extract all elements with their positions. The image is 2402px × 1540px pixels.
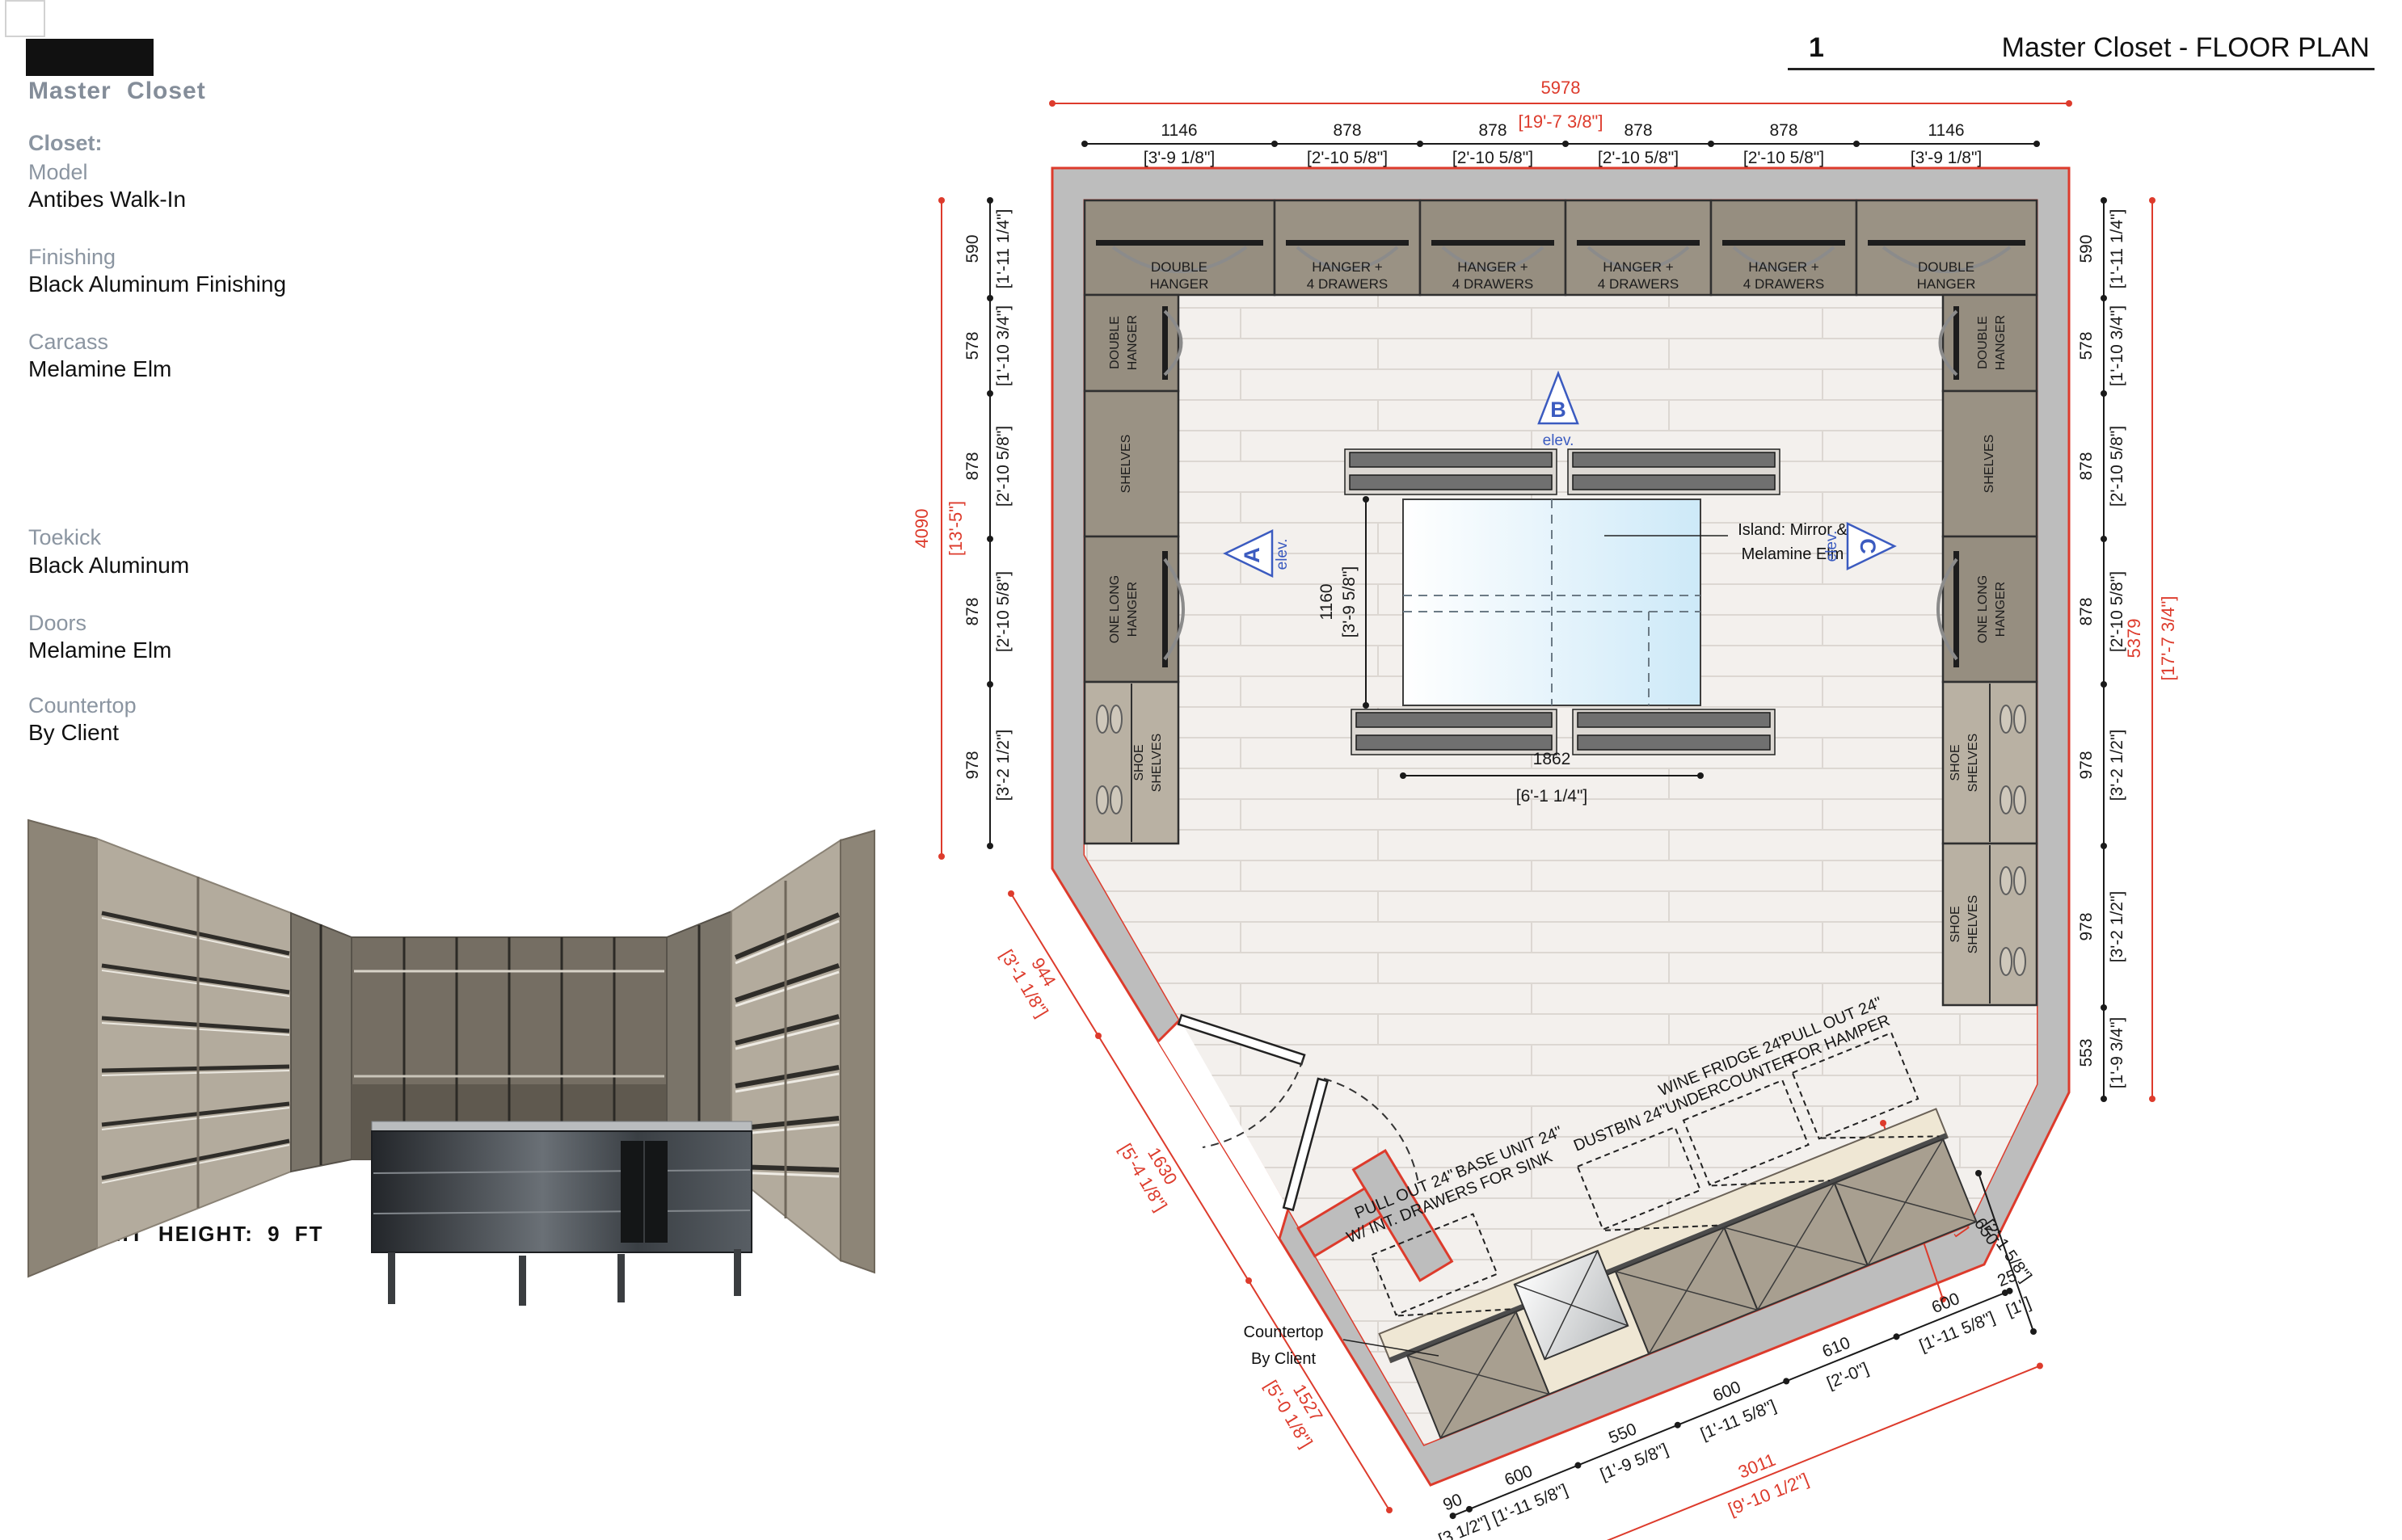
dim-text: 610 (1820, 1333, 1853, 1361)
cabinet-label: ONE LONG (1976, 575, 1990, 643)
cabinet-label: SHELVES (1966, 895, 1980, 954)
left-cabinet-column: DOUBLE HANGER SHELVES ONE LONG HANGER SH… (1085, 295, 1183, 844)
dim-text: 600 (1710, 1378, 1743, 1405)
marker-letter: C (1856, 538, 1880, 554)
marker-elev-label: elev. (1274, 539, 1291, 570)
dim-text: 878 (1624, 121, 1652, 140)
cabinet-left-double-hanger: DOUBLE HANGER (1085, 295, 1182, 391)
cabinet-label: ONE LONG (1108, 575, 1122, 643)
cabinet-label: SHELVES (1119, 435, 1133, 494)
top-overall-dim: 5978 [19'-7 3/8"] (1049, 78, 2072, 132)
closet-3d-render (16, 792, 889, 1309)
dim-text: [1'-10 3/4"] (2108, 305, 2126, 386)
countertop-value: By Client (28, 720, 119, 746)
cabinet-label: SHELVES (1966, 734, 1980, 793)
cabinet-label: HANGER + (1312, 259, 1382, 275)
dim-text: [3'-2 1/2"] (2108, 730, 2126, 802)
render-left-end-panel (28, 820, 97, 1277)
dim-text: 5978 (1541, 78, 1581, 98)
dim-text: [3'-9 5/8"] (1340, 566, 1359, 638)
dim-text: 878 (1478, 121, 1507, 140)
dim-text: [1'-9 5/8"] (1598, 1440, 1671, 1483)
marker-elev-label: elev. (1543, 432, 1574, 449)
dim-text: 878 (2077, 597, 2096, 625)
dim-text: 550 (1606, 1420, 1639, 1447)
right-overall-dim: 5379 [17'-7 3/4"] (2124, 197, 2178, 1102)
cabinet-right-shelves: SHELVES (1943, 391, 2037, 536)
render-left-shelf-wall (97, 839, 291, 1248)
dim-text: 1160 (1317, 583, 1336, 620)
cabinet-label: DOUBLE (1108, 316, 1122, 369)
dim-text: [1'-9 3/4"] (2108, 1017, 2126, 1089)
marker-letter: A (1240, 547, 1264, 563)
finishing-label: Finishing (28, 245, 116, 270)
cabinet-label: SHOE (1132, 744, 1146, 781)
cabinet-label: DOUBLE (1918, 259, 1974, 275)
cabinet-label: SHOE (1949, 744, 1962, 781)
right-cabinet-column: DOUBLE HANGER SHELVES ONE LONG HANGER SH… (1938, 295, 2037, 1005)
dim-text: 578 (963, 331, 982, 360)
dim-text: [6'-1 1/4"] (1516, 787, 1588, 806)
cabinet-top-3: HANGER + 4 DRAWERS (1420, 200, 1566, 295)
dim-text: [3'-2 1/2"] (994, 730, 1013, 802)
dim-text: 90 (1440, 1490, 1464, 1514)
dim-text: [1'-11 1/4"] (2108, 209, 2126, 289)
dim-text: [1'-11 5/8"] (1917, 1308, 1998, 1355)
dim-text: 5379 (2124, 619, 2144, 658)
countertop-note: Countertop (1244, 1323, 1324, 1341)
project-title: Master Closet (28, 78, 206, 105)
dim-text: 590 (963, 234, 982, 263)
cabinet-right-double-hanger: DOUBLE HANGER (1941, 295, 2037, 391)
dim-text: [2'-10 5/8"] (1598, 149, 1679, 167)
dim-text: [3'-9 1/8"] (1144, 149, 1216, 167)
dim-text: 978 (2077, 751, 2096, 779)
dim-text: [1'-11 5/8"] (1698, 1396, 1779, 1443)
floor-plan: DOUBLE HANGER HANGER + 4 DRAWERS HANGER … (889, 48, 2344, 1540)
dim-text: [2'-10 5/8"] (994, 571, 1013, 652)
marker-letter: B (1550, 398, 1566, 422)
dim-text: [2'-10 5/8"] (2108, 426, 2126, 507)
dim-text: [1'-10 3/4"] (994, 305, 1013, 386)
dim-text: 878 (2077, 452, 2096, 480)
toekick-value: Black Aluminum (28, 553, 189, 579)
dim-text: 590 (2077, 234, 2096, 263)
cabinet-label: SHELVES (1150, 734, 1164, 793)
cabinet-label: 4 DRAWERS (1307, 276, 1388, 292)
finishing-value: Black Aluminum Finishing (28, 271, 286, 297)
carcass-label: Carcass (28, 330, 108, 355)
cabinet-label: HANGER + (1603, 259, 1673, 275)
dim-text: 1146 (1161, 121, 1197, 140)
dim-text: [3 1/2"] (1436, 1513, 1493, 1540)
corner-box (5, 0, 45, 37)
left-overall-dim: 4090 [13'-5"] (912, 197, 966, 860)
bench-bottom-right (1573, 709, 1775, 755)
dim-text: 878 (1333, 121, 1361, 140)
cabinet-label: DOUBLE (1976, 316, 1990, 369)
cabinet-left-shoe-shelves: SHOE SHELVES (1085, 682, 1178, 844)
cabinet-label: HANGER (1126, 315, 1140, 370)
cabinet-right-one-long-hanger: ONE LONG HANGER (1938, 536, 2037, 682)
dim-text: 878 (963, 452, 982, 480)
carcass-value: Melamine Elm (28, 356, 171, 382)
cabinet-label: HANGER + (1457, 259, 1528, 275)
dim-text: 600 (1502, 1462, 1535, 1489)
cabinet-label: DOUBLE (1151, 259, 1207, 275)
dim-text: 1862 (1533, 750, 1571, 768)
cabinet-label: SHOE (1949, 906, 1962, 942)
dim-text: [2'-10 5/8"] (1307, 149, 1388, 167)
dim-text: [2'-10 5/8"] (994, 426, 1013, 507)
dim-text: 878 (963, 597, 982, 625)
doors-value: Melamine Elm (28, 637, 171, 663)
cabinet-top-4: HANGER + 4 DRAWERS (1566, 200, 1711, 295)
dim-text: 553 (2077, 1038, 2096, 1067)
dim-text: [19'-7 3/8"] (1519, 112, 1603, 132)
dim-text: [2'-10 5/8"] (1743, 149, 1824, 167)
countertop-note: By Client (1251, 1350, 1316, 1368)
dim-text: [2'-0"] (1824, 1359, 1871, 1392)
cabinet-label: 4 DRAWERS (1743, 276, 1824, 292)
cabinet-top-1: DOUBLE HANGER (1085, 200, 1275, 295)
cabinet-label: HANGER (1994, 315, 2008, 370)
cabinet-label: HANGER (1994, 582, 2008, 637)
cabinet-label: HANGER + (1748, 259, 1818, 275)
cabinet-label: HANGER (1126, 582, 1140, 637)
toekick-label: Toekick (28, 525, 101, 550)
dim-text: [1'-11 5/8"] (1490, 1481, 1570, 1528)
cabinet-label: SHELVES (1983, 435, 1996, 494)
countertop-label: Countertop (28, 693, 137, 718)
dim-text: 4090 (912, 509, 932, 549)
cabinet-top-5: HANGER + 4 DRAWERS (1711, 200, 1856, 295)
marker-elev-label: elev. (1823, 531, 1840, 562)
dim-text: [2'-10 5/8"] (1452, 149, 1533, 167)
cabinet-label: HANGER (1150, 276, 1209, 292)
cabinet-label: 4 DRAWERS (1452, 276, 1533, 292)
closet-section-label: Closet: (28, 131, 103, 156)
bench-bottom-left (1351, 709, 1557, 755)
dim-text: [13'-5"] (946, 501, 966, 556)
dim-text: 3011 (1735, 1450, 1778, 1483)
cabinet-label: HANGER (1917, 276, 1976, 292)
cabinet-left-shelves: SHELVES (1085, 391, 1178, 536)
dim-text: [1'-11 1/4"] (994, 209, 1013, 289)
cabinet-top-6: DOUBLE HANGER (1856, 200, 2037, 295)
bench-top-right (1568, 449, 1780, 494)
logo-redaction-box (26, 39, 154, 76)
dim-text: 1146 (1928, 121, 1964, 140)
cabinet-top-2: HANGER + 4 DRAWERS (1275, 200, 1420, 295)
bench-top-left (1345, 449, 1557, 494)
cabinet-left-one-long-hanger: ONE LONG HANGER (1085, 536, 1183, 682)
left-segment-dims: 590 [1'-11 1/4"] 578 [1'-10 3/4"] 878 [2… (963, 197, 1013, 849)
dim-text: 600 (1929, 1290, 1962, 1317)
top-cabinet-row: DOUBLE HANGER HANGER + 4 DRAWERS HANGER … (1085, 200, 2037, 295)
model-label: Model (28, 160, 88, 185)
dim-text: [3'-2 1/2"] (2108, 891, 2126, 963)
render-right-end-panel (841, 831, 874, 1273)
right-segment-dims: 590 [1'-11 1/4"] 578 [1'-10 3/4"] 878 [2… (2077, 197, 2126, 1102)
dim-text: 578 (2077, 331, 2096, 360)
dim-text: [1"] (2004, 1294, 2033, 1320)
doors-label: Doors (28, 611, 86, 636)
dim-text: 978 (963, 751, 982, 779)
model-value: Antibes Walk-In (28, 187, 186, 212)
dim-text: 978 (2077, 912, 2096, 940)
cabinet-label: 4 DRAWERS (1598, 276, 1679, 292)
dim-text: [17'-7 3/4"] (2158, 596, 2178, 681)
cabinet-right-shoe-shelves-1: SHOE SHELVES (1943, 682, 2037, 844)
dim-text: [3'-9 1/8"] (1911, 149, 1983, 167)
dim-text: [9'-10 1/2"] (1726, 1469, 1812, 1520)
render-island (372, 1121, 752, 1306)
cabinet-right-shoe-shelves-2: SHOE SHELVES (1943, 844, 2037, 1005)
dim-text: 878 (1769, 121, 1797, 140)
